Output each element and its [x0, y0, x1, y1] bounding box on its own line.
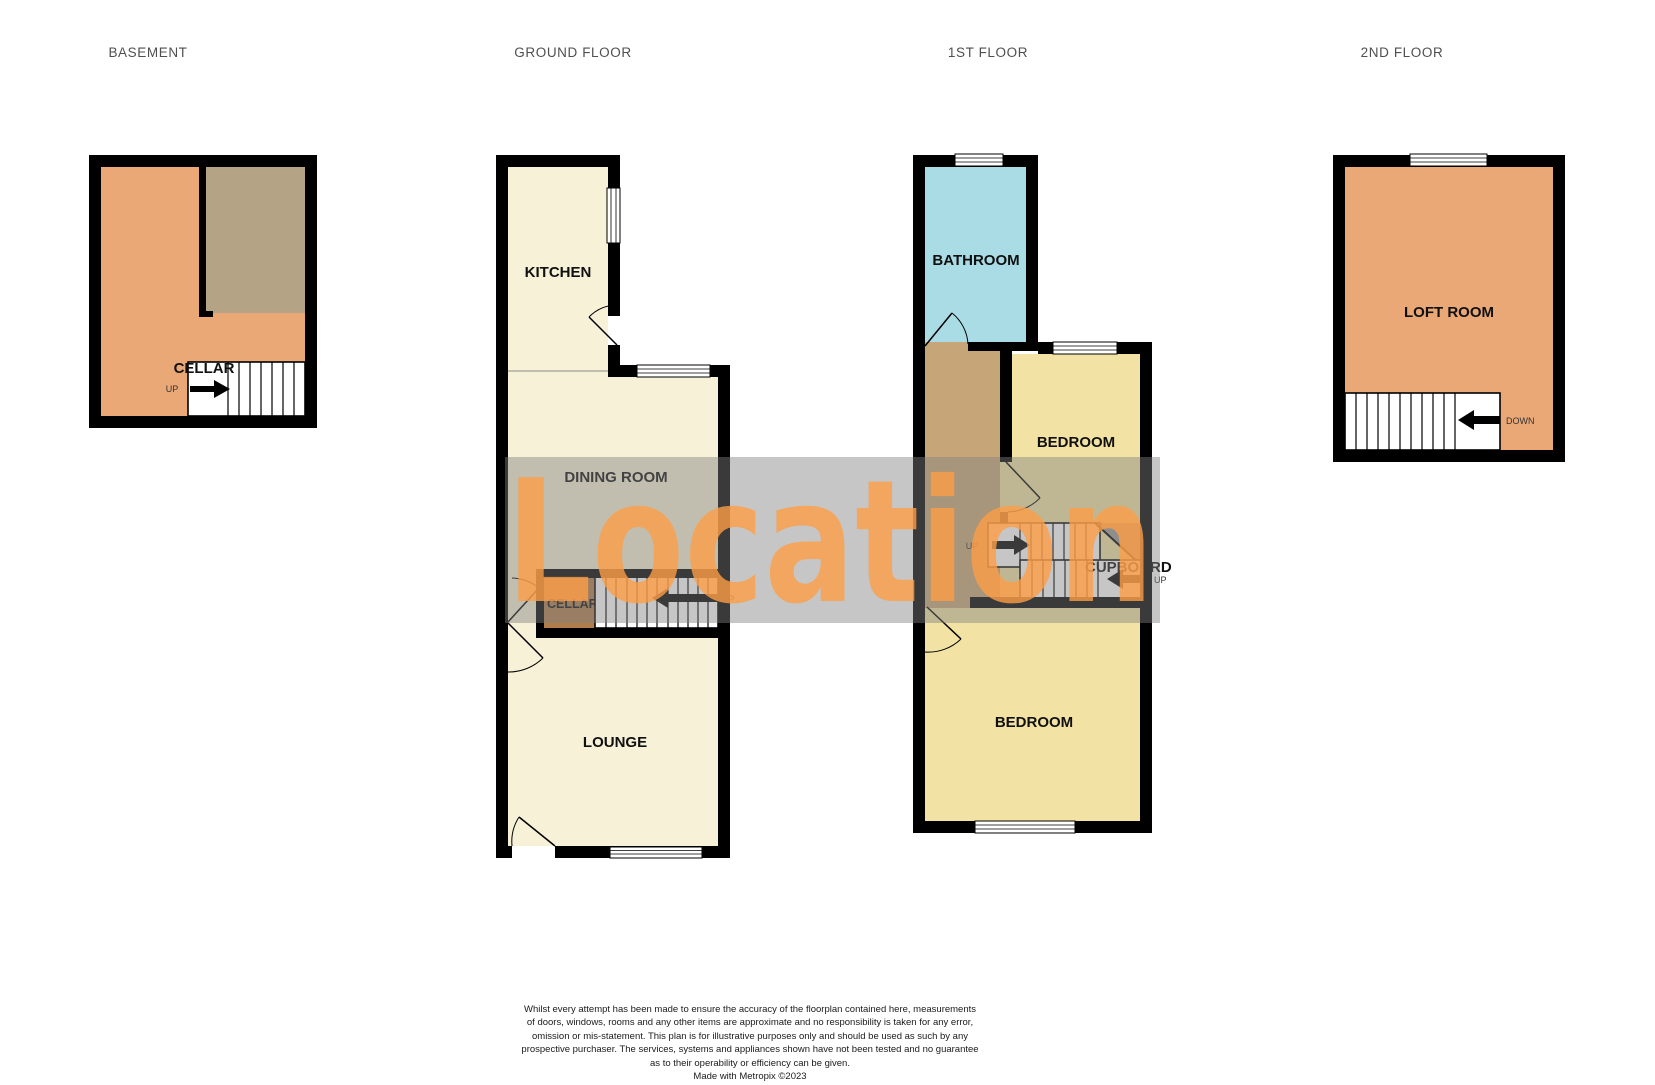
lounge-window — [610, 847, 702, 858]
wall-segment — [608, 243, 620, 316]
disclaimer-line: Whilst every attempt has been made to en… — [440, 1003, 1060, 1016]
bathroom-window — [955, 154, 1003, 166]
disclaimer-line: prospective purchaser. The services, sys… — [440, 1043, 1060, 1056]
wall-segment — [89, 155, 101, 428]
wall-segment — [305, 155, 317, 428]
basement-plan: CELLAR UP — [89, 155, 317, 428]
disclaimer-line: as to their operability or efficiency ca… — [440, 1057, 1060, 1070]
watermark-logo-text: Location — [506, 444, 1154, 642]
loft-window — [1410, 154, 1487, 166]
basement-cellar-label: CELLAR — [174, 360, 235, 377]
bedroom-front-window — [975, 821, 1075, 833]
basement-store-area — [206, 167, 305, 313]
disclaimer-line: omission or mis-statement. This plan is … — [440, 1030, 1060, 1043]
floorplan-canvas: BASEMENT GROUND FLOOR 1ST FLOOR 2ND FLOO… — [0, 0, 1655, 1080]
ground-floor-title: GROUND FLOOR — [514, 45, 631, 60]
wall-segment — [608, 345, 620, 377]
wall-segment — [1026, 155, 1038, 350]
wall-segment — [1333, 155, 1345, 462]
wall-segment — [1333, 450, 1565, 462]
bathroom-label: BATHROOM — [932, 252, 1019, 269]
bedroom-front-label: BEDROOM — [995, 714, 1073, 731]
wall-segment — [199, 167, 206, 317]
lounge-label: LOUNGE — [583, 734, 647, 751]
loft-room-label: LOFT ROOM — [1404, 304, 1494, 321]
wall-segment — [89, 155, 317, 167]
second-floor-title: 2ND FLOOR — [1361, 45, 1444, 60]
disclaimer-line: of doors, windows, rooms and any other i… — [440, 1016, 1060, 1029]
disclaimer: Whilst every attempt has been made to en… — [440, 1003, 1060, 1083]
wall-segment — [608, 155, 620, 188]
metropix-credit: Made with Metropix ©2023 — [440, 1070, 1060, 1083]
basement-up-label: UP — [166, 384, 179, 394]
second-floor-plan: LOFT ROOM DOWN — [1333, 154, 1565, 462]
wall-segment — [968, 342, 1038, 351]
first-floor-title: 1ST FLOOR — [948, 45, 1028, 60]
kitchen-window — [607, 188, 620, 243]
kitchen-label: KITCHEN — [525, 264, 592, 281]
watermark: Location — [505, 444, 1160, 642]
dining-window — [637, 365, 710, 377]
basement-title: BASEMENT — [108, 45, 187, 60]
wall-segment — [199, 311, 213, 317]
wall-segment — [496, 155, 620, 167]
wall-segment — [89, 416, 317, 428]
bedroom-rear-window — [1053, 342, 1117, 354]
loft-down-label: DOWN — [1506, 416, 1535, 426]
wall-segment — [1553, 155, 1565, 462]
wall-segment — [496, 846, 512, 858]
